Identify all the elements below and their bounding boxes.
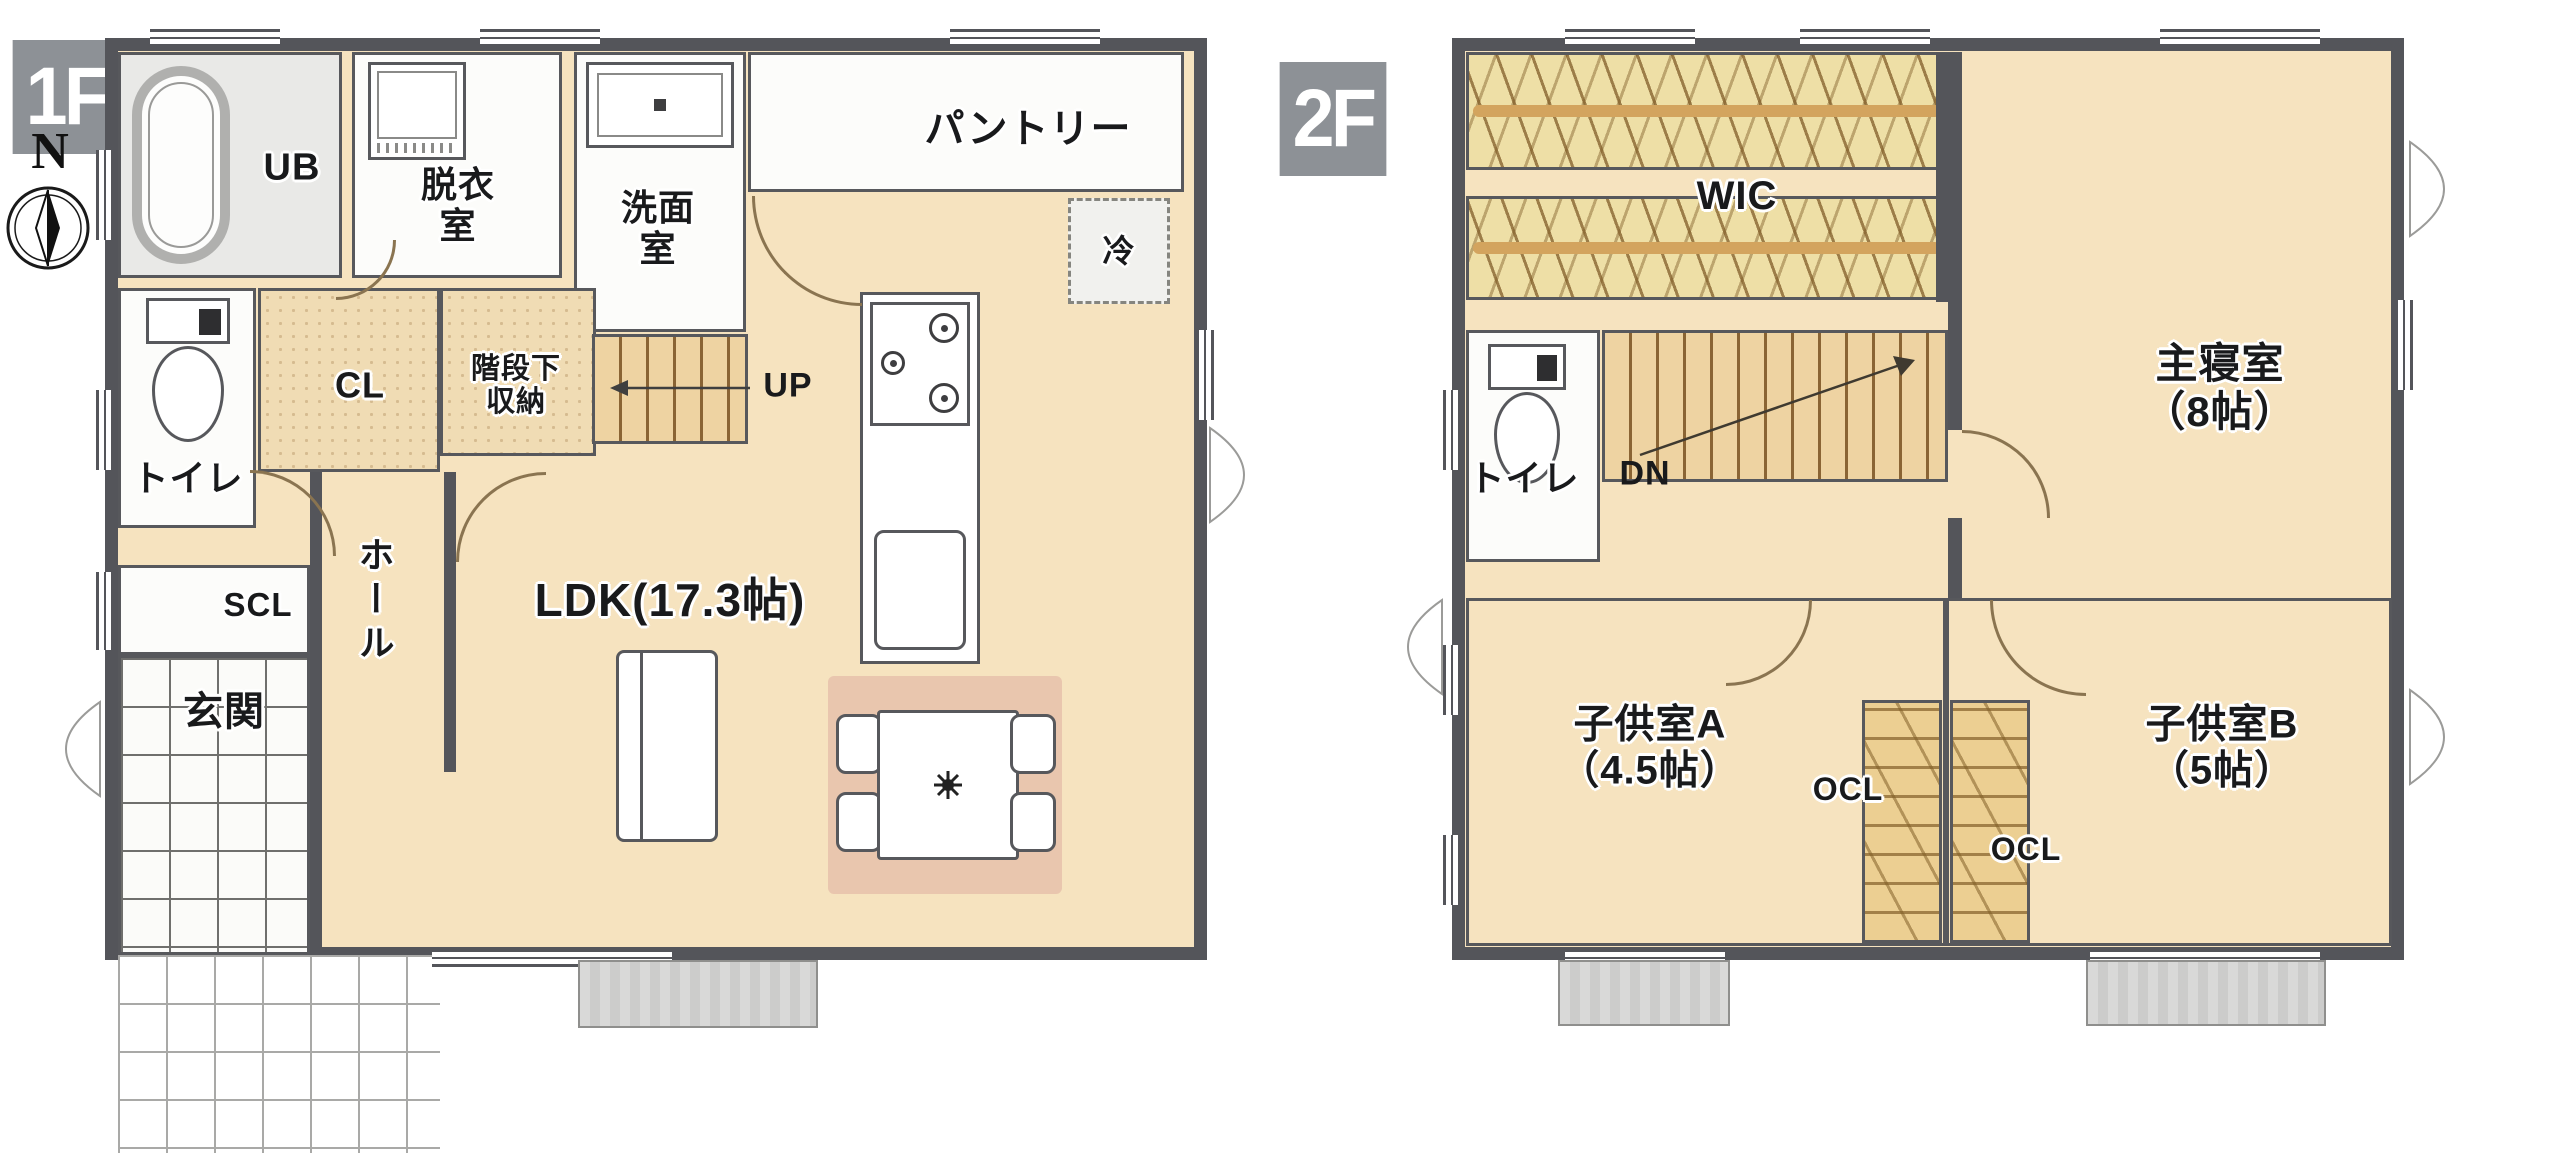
compass-icon: N: [0, 120, 100, 290]
washing-machine-icon: [368, 62, 466, 160]
room-label-master-bedroom: 主寝室 （8帖）: [2143, 340, 2296, 436]
room-label-kids-b: 子供室B （5帖）: [2146, 702, 2299, 793]
plant-icon: [930, 767, 966, 808]
room-label-washroom: 洗面 室: [621, 187, 695, 269]
dining-chair-icon: [1010, 714, 1056, 774]
wall-hall-bedroom: [1948, 518, 1962, 598]
room-label-ldk: LDK(17.3帖): [535, 574, 806, 626]
dining-chair-icon: [1010, 792, 1056, 852]
room-label-wic: WIC: [1697, 174, 1778, 220]
room-label-kids-a: 子供室A （4.5帖）: [1559, 702, 1741, 793]
window: [1443, 645, 1461, 715]
window: [1443, 390, 1461, 470]
room-label-toilet-2f: トイレ: [1468, 457, 1579, 498]
window: [96, 150, 114, 240]
window: [1443, 835, 1461, 905]
room-label-pantry: パントリー: [925, 107, 1132, 153]
closet-ocl-a: [1862, 700, 1942, 943]
window: [96, 390, 114, 470]
deck-1f: [578, 960, 818, 1028]
window: [950, 29, 1100, 47]
balcony-2f: [2086, 960, 2326, 1026]
room-label-scl: SCL: [224, 586, 293, 624]
room-label-hall: ホール: [353, 536, 394, 668]
door-swing-icon: [2408, 140, 2480, 243]
svg-text:N: N: [31, 123, 69, 180]
window: [2395, 300, 2413, 390]
floor-plan-page: { "compass": { "north": "N" }, "colors":…: [0, 0, 2560, 1176]
window: [1800, 29, 1930, 47]
toilet-tank-icon: [146, 298, 230, 344]
balcony-2f: [1558, 960, 1730, 1026]
room-label-under-stairs: 階段下 収納: [471, 353, 561, 419]
window: [2160, 29, 2320, 47]
closet-label-ocl-a: OCL: [1813, 771, 1884, 807]
room-label-cl: CL: [335, 364, 385, 405]
dining-chair-icon: [836, 714, 882, 774]
closet-label-ocl-b: OCL: [1991, 831, 2062, 867]
door-swing-icon: [30, 700, 102, 803]
stairs-up-label: UP: [763, 367, 812, 406]
closet-ocl-b: [1950, 700, 2030, 943]
window: [1196, 330, 1214, 420]
room-label-entrance: 玄関: [183, 690, 265, 736]
bathtub-icon: [132, 66, 230, 264]
window: [1565, 29, 1695, 47]
room-label-changing: 脱衣 室: [421, 164, 495, 246]
floor-badge-2f: 2F: [1280, 62, 1387, 176]
dining-chair-icon: [836, 792, 882, 852]
porch-tiled-floor: [118, 955, 440, 1153]
stove-icon: [870, 302, 970, 426]
room-label-fridge: 冷: [1102, 233, 1135, 269]
sofa-icon: [616, 650, 718, 842]
toilet-tank-icon: [1488, 344, 1566, 390]
window: [480, 29, 600, 47]
vanity-sink-icon: [586, 62, 734, 148]
stairs-up-arrow-icon: [600, 368, 760, 408]
kitchen-sink-icon: [874, 530, 966, 650]
door-swing-icon: [2408, 688, 2480, 791]
wall-hall-ldk: [444, 472, 456, 772]
room-label-ub: UB: [264, 146, 321, 189]
window: [96, 572, 114, 650]
stairs-down-label: DN: [1619, 455, 1670, 494]
room-label-toilet-1f: トイレ: [132, 457, 243, 498]
wall-hall-bedroom: [1948, 52, 1962, 430]
door-swing-icon: [1208, 426, 1280, 529]
wic-hanger-rod: [1466, 52, 1948, 170]
door-swing-icon: [1372, 598, 1444, 701]
window: [150, 29, 280, 47]
